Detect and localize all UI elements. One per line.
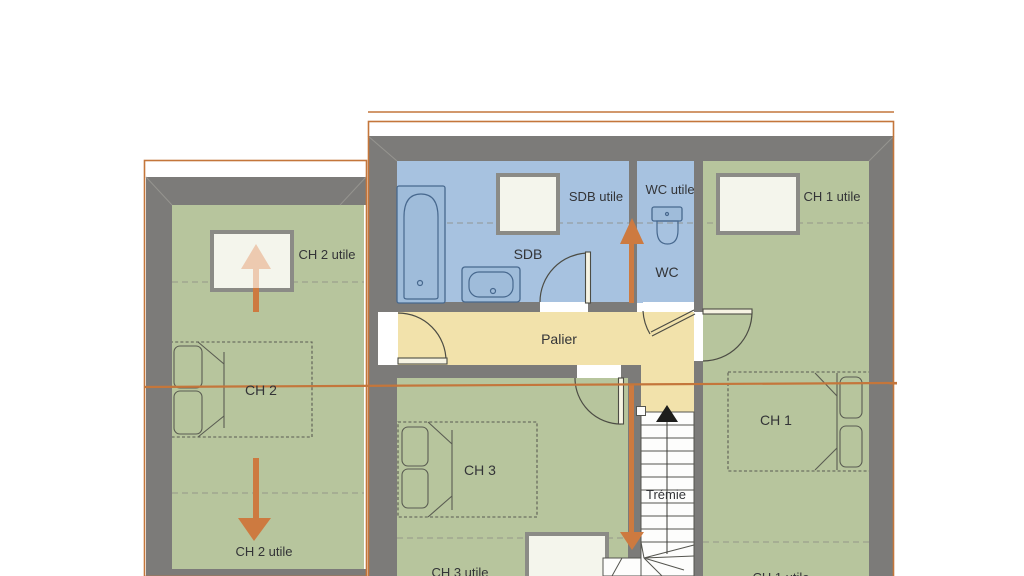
velux-window-sdb [498, 175, 558, 233]
label-ch1-utile-top: CH 1 utile [803, 189, 860, 204]
label-ch2: CH 2 [245, 382, 277, 398]
label-ch2-utile-bottom: CH 2 utile [235, 544, 292, 559]
label-ch1: CH 1 [760, 412, 792, 428]
door-opening-ch1 [694, 312, 703, 361]
bathtub [397, 186, 445, 303]
building-right [368, 112, 894, 576]
stair-winder-box [603, 558, 641, 576]
label-wc: WC [655, 264, 678, 280]
label-sdb: SDB [514, 246, 543, 262]
wall-sdb-palier [588, 302, 637, 312]
door-opening-sdb [540, 302, 588, 312]
wall-palier-ch3 [368, 365, 577, 378]
velux-window-ch3 [527, 534, 607, 576]
label-ch1-utile-bottom: CH 1 utile [752, 570, 809, 576]
wall-left-top [146, 177, 366, 205]
label-palier: Palier [541, 331, 577, 347]
wall-palier-ch3 [621, 365, 641, 378]
washbasin [462, 267, 520, 302]
wall-stairs-ch1 [694, 361, 703, 576]
label-ch3: CH 3 [464, 462, 496, 478]
building-left [145, 161, 367, 576]
label-wc-utile: WC utile [645, 182, 694, 197]
wall-right-east [869, 136, 894, 576]
label-ch3-utile: CH 3 utile [431, 565, 488, 576]
wall-left-west [146, 177, 172, 576]
label-sdb-utile: SDB utile [569, 189, 623, 204]
wall-right-top [368, 136, 894, 161]
door-opening-wc [643, 302, 694, 312]
velux-window-ch1 [718, 175, 798, 233]
floor-plan: CH 2 utile CH 2 CH 2 utile SDB utile SDB… [0, 0, 1024, 576]
door-opening-ch2 [378, 312, 398, 365]
wall-left-bottom [146, 569, 366, 576]
wall-wc-ch1 [694, 161, 703, 312]
door-opening-ch3 [577, 365, 621, 378]
label-ch2-utile-top: CH 2 utile [298, 247, 355, 262]
stair-newel-marker [637, 407, 646, 416]
label-tremie: Trémie [646, 487, 686, 502]
